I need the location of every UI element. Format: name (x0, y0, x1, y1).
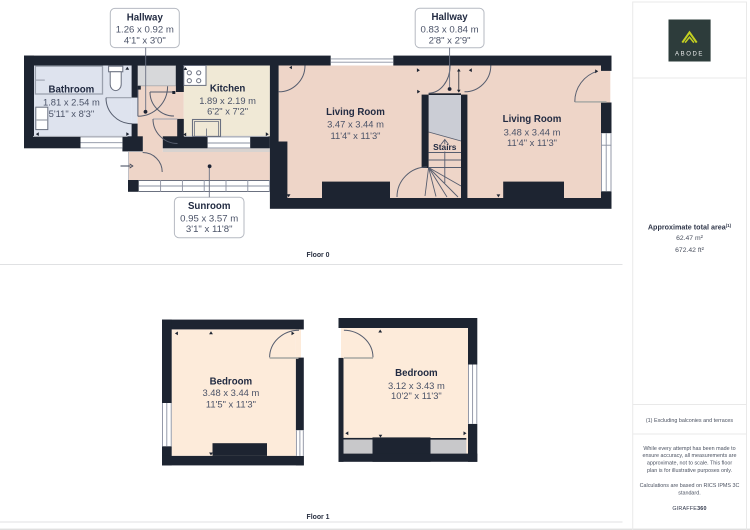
svg-text:11'5" x 11'3": 11'5" x 11'3" (206, 398, 256, 409)
svg-text:While every attempt has been m: While every attempt has been made to (643, 446, 735, 452)
svg-text:11'4" x 11'3": 11'4" x 11'3" (507, 137, 557, 148)
svg-text:0.83 x 0.84 m: 0.83 x 0.84 m (421, 25, 479, 36)
svg-text:11'4" x 11'3": 11'4" x 11'3" (330, 130, 380, 141)
svg-text:(1) Excluding balconies and te: (1) Excluding balconies and terraces (646, 418, 733, 424)
svg-text:5'11" x 8'3": 5'11" x 8'3" (49, 108, 95, 119)
svg-text:0.95 x 3.57 m: 0.95 x 3.57 m (180, 214, 238, 225)
svg-text:Approximate total area(1): Approximate total area(1) (648, 223, 732, 232)
svg-text:Kitchen: Kitchen (210, 84, 246, 95)
svg-text:GIRAFFE360: GIRAFFE360 (672, 506, 706, 512)
svg-text:2'8" x 2'9": 2'8" x 2'9" (429, 35, 471, 46)
svg-text:1.81 x 2.54 m: 1.81 x 2.54 m (43, 96, 100, 107)
svg-text:6'2" x 7'2": 6'2" x 7'2" (207, 106, 248, 117)
svg-text:ABODE: ABODE (675, 52, 704, 58)
svg-text:62.47 m²: 62.47 m² (676, 235, 704, 242)
svg-text:1.26 x 0.92 m: 1.26 x 0.92 m (116, 25, 174, 36)
svg-text:Stairs: Stairs (433, 142, 457, 152)
svg-text:Bedroom: Bedroom (395, 368, 438, 379)
svg-text:Living Room: Living Room (326, 107, 385, 118)
svg-text:3'1" x 11'8": 3'1" x 11'8" (186, 224, 233, 235)
svg-text:Calculations are based on RICS: Calculations are based on RICS IPMS 3C (640, 483, 740, 489)
svg-text:Bedroom: Bedroom (210, 377, 253, 388)
svg-text:3.47 x 3.44 m: 3.47 x 3.44 m (327, 119, 384, 130)
svg-text:standard.: standard. (678, 491, 700, 497)
svg-text:Sunroom: Sunroom (188, 201, 231, 212)
svg-text:Floor 1: Floor 1 (307, 514, 330, 521)
svg-text:Hallway: Hallway (127, 12, 164, 23)
svg-text:672.42 ft²: 672.42 ft² (675, 247, 704, 254)
svg-text:approximate, not to scale. Thi: approximate, not to scale. This floor (647, 461, 732, 467)
svg-text:4'1" x 3'0": 4'1" x 3'0" (124, 35, 166, 46)
svg-text:Floor 0: Floor 0 (307, 252, 330, 259)
svg-text:1.89 x 2.19 m: 1.89 x 2.19 m (199, 95, 256, 106)
svg-text:10'2" x 11'3": 10'2" x 11'3" (391, 390, 442, 401)
svg-text:plan is for illustrative purpo: plan is for illustrative purposes only. (647, 468, 732, 474)
svg-text:Living Room: Living Room (503, 114, 562, 125)
svg-text:ensure accuracy, all measureme: ensure accuracy, all measurements are (643, 453, 737, 459)
svg-text:Hallway: Hallway (432, 12, 469, 23)
svg-text:3.48 x 3.44 m: 3.48 x 3.44 m (202, 387, 259, 398)
svg-text:Bathroom: Bathroom (49, 85, 95, 96)
